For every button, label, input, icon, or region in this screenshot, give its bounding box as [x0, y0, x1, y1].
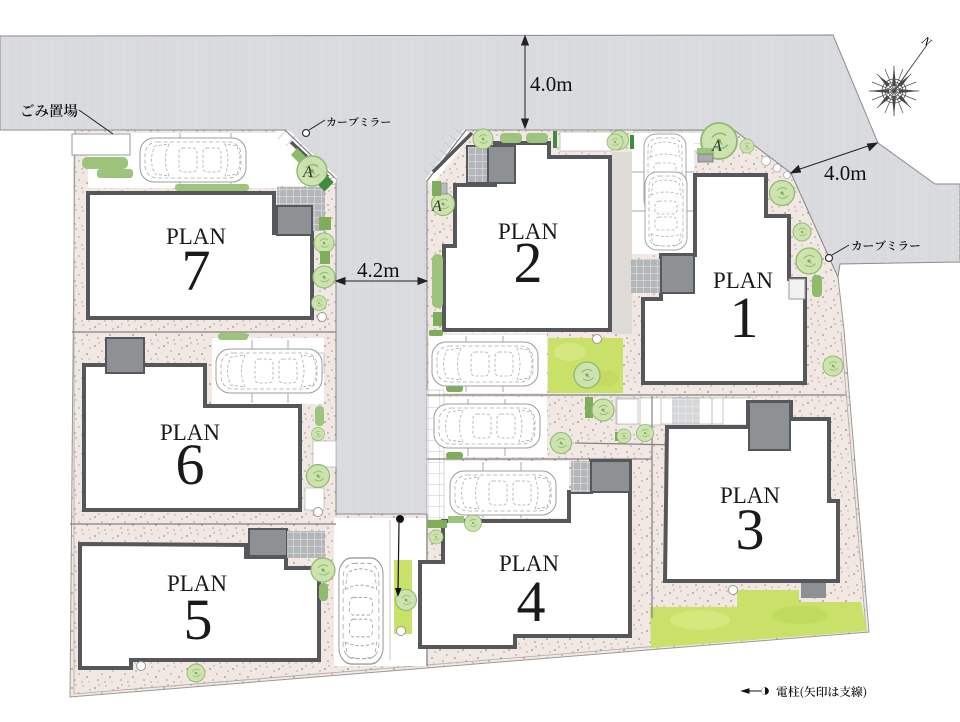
svg-text:A: A	[302, 164, 313, 181]
svg-text:7: 7	[182, 238, 211, 303]
svg-text:A: A	[431, 198, 442, 215]
svg-text:5: 5	[184, 587, 213, 652]
svg-text:2: 2	[514, 230, 543, 295]
svg-text:3: 3	[736, 497, 765, 562]
svg-text:4.2m: 4.2m	[357, 258, 400, 282]
svg-text:6: 6	[176, 432, 205, 497]
svg-text:4: 4	[517, 569, 546, 634]
svg-text:4.0m: 4.0m	[824, 161, 867, 185]
svg-text:A: A	[711, 138, 722, 155]
svg-text:4.0m: 4.0m	[530, 72, 573, 96]
svg-text:1: 1	[730, 285, 759, 350]
